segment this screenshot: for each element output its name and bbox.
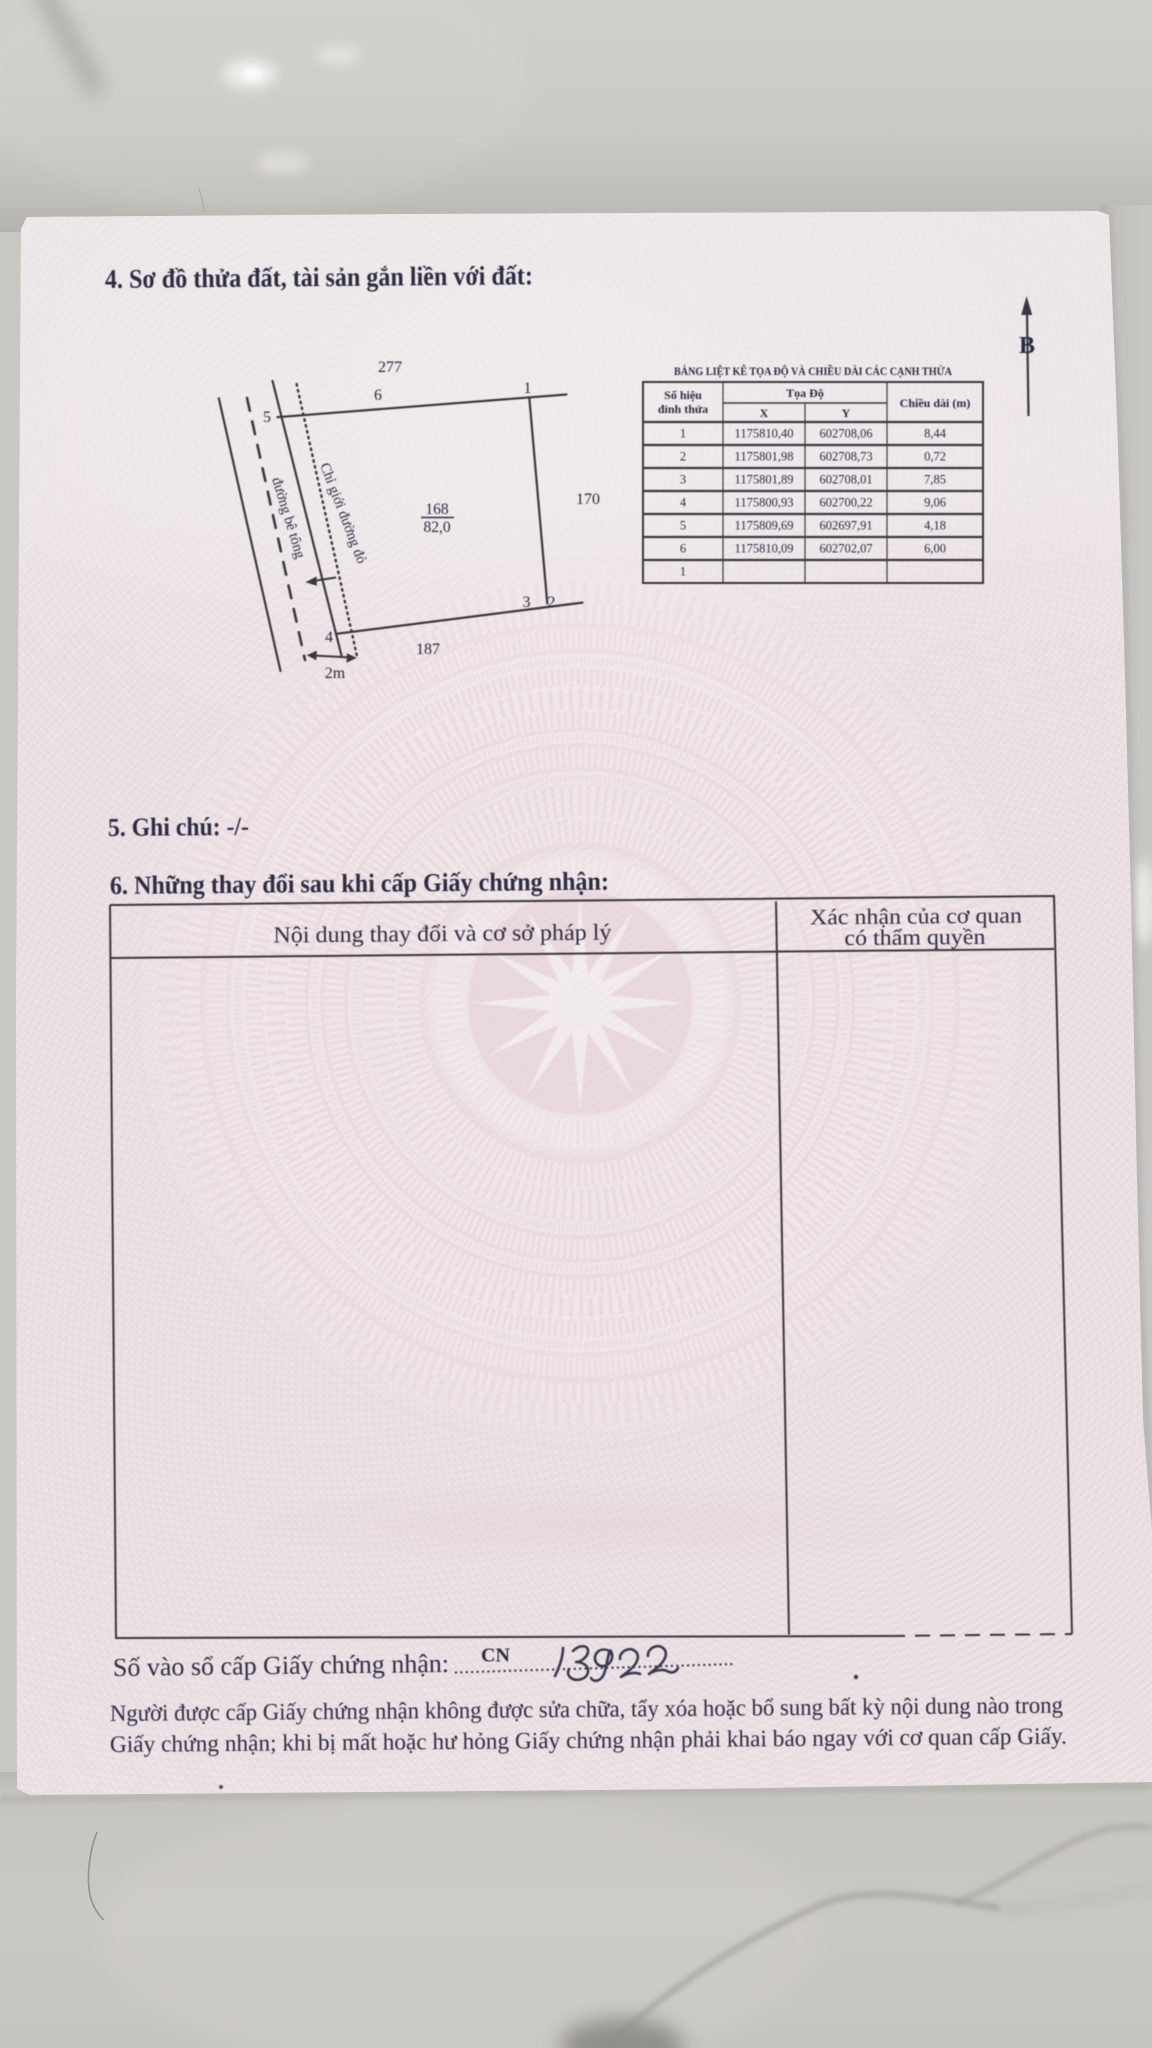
svg-text:7,85: 7,85 — [924, 473, 946, 487]
svg-text:đỉnh thửa: đỉnh thửa — [658, 402, 708, 416]
svg-text:277: 277 — [378, 359, 402, 376]
svg-text:3: 3 — [680, 473, 686, 487]
svg-text:B: B — [1019, 333, 1035, 359]
svg-text:602700,22: 602700,22 — [819, 496, 872, 510]
svg-text:1: 1 — [680, 427, 686, 441]
svg-text:5: 5 — [263, 409, 271, 426]
svg-text:Giấy chứng nhận; khi bị mất ho: Giấy chứng nhận; khi bị mất hoặc hư hỏng… — [110, 1724, 1067, 1758]
svg-text:Người được cấp Giấy chứng nhận: Người được cấp Giấy chứng nhận không đượ… — [110, 1693, 1063, 1727]
svg-text:4. Sơ đồ thửa đất, tài sản gắn: 4. Sơ đồ thửa đất, tài sản gắn liền với … — [105, 260, 533, 294]
svg-text:1: 1 — [680, 565, 686, 579]
svg-text:1175801,98: 1175801,98 — [735, 450, 794, 464]
svg-text:1175810,09: 1175810,09 — [735, 542, 794, 556]
svg-text:5: 5 — [680, 519, 686, 533]
svg-text:1175801,89: 1175801,89 — [735, 473, 794, 487]
svg-text:4: 4 — [325, 629, 333, 646]
svg-text:0,72: 0,72 — [924, 450, 946, 464]
svg-text:1: 1 — [524, 380, 532, 397]
svg-text:Số vào sổ cấp Giấy chứng nhận:: Số vào sổ cấp Giấy chứng nhận: — [113, 1649, 449, 1682]
svg-text:602708,73: 602708,73 — [819, 450, 872, 464]
svg-text:6: 6 — [374, 387, 382, 404]
svg-text:8,44: 8,44 — [924, 427, 947, 441]
svg-text:2: 2 — [680, 450, 686, 464]
svg-text:1175800,93: 1175800,93 — [735, 496, 794, 510]
svg-text:Nội dung thay đổi và cơ sở phá: Nội dung thay đổi và cơ sở pháp lý — [273, 920, 612, 948]
svg-text:6,00: 6,00 — [924, 542, 946, 556]
svg-text:X: X — [760, 406, 769, 420]
svg-text:3: 3 — [523, 594, 531, 611]
svg-text:5. Ghi chú: -/-: 5. Ghi chú: -/- — [108, 812, 249, 842]
svg-text:1175809,69: 1175809,69 — [735, 519, 794, 533]
svg-text:602697,91: 602697,91 — [819, 519, 872, 533]
svg-text:602708,06: 602708,06 — [819, 427, 872, 441]
svg-text:2m: 2m — [325, 665, 346, 682]
svg-text:82,0: 82,0 — [423, 519, 450, 536]
svg-text:Y: Y — [842, 406, 851, 420]
svg-text:170: 170 — [576, 491, 600, 508]
svg-text:187: 187 — [416, 641, 440, 658]
svg-text:6: 6 — [680, 542, 686, 556]
svg-text:602702,07: 602702,07 — [819, 542, 872, 556]
svg-text:BẢNG LIỆT KÊ TỌA ĐỘ VÀ CHIỀU D: BẢNG LIỆT KÊ TỌA ĐỘ VÀ CHIỀU DÀI CÁC CẠN… — [674, 363, 952, 378]
svg-text:1175810,40: 1175810,40 — [735, 427, 794, 441]
svg-text:2: 2 — [548, 594, 556, 611]
svg-text:168: 168 — [425, 501, 449, 518]
svg-text:Số hiệu: Số hiệu — [664, 388, 702, 402]
svg-text:9,06: 9,06 — [924, 496, 946, 510]
svg-text:có thẩm quyền: có thẩm quyền — [844, 924, 985, 950]
svg-text:Tọa Độ: Tọa Độ — [786, 386, 824, 400]
svg-text:4: 4 — [680, 496, 687, 510]
svg-text:4,18: 4,18 — [924, 519, 946, 533]
svg-text:6. Những thay đổi sau khi cấp: 6. Những thay đổi sau khi cấp Giấy chứng… — [110, 867, 609, 900]
svg-text:602708,01: 602708,01 — [819, 473, 872, 487]
svg-text:CN: CN — [481, 1645, 510, 1667]
svg-text:Chiều dài (m): Chiều dài (m) — [900, 396, 971, 410]
